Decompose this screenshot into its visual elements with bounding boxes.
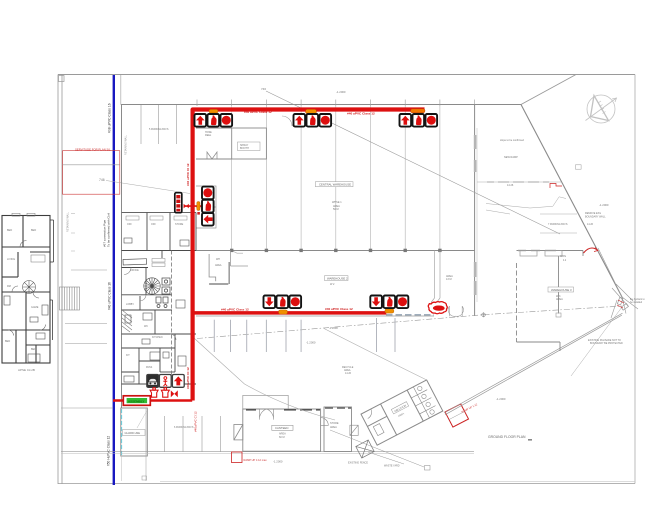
svg-text:-1.2000: -1.2000 xyxy=(336,90,346,94)
svg-text:GAME: GAME xyxy=(31,306,39,309)
svg-text:BED: BED xyxy=(5,340,10,343)
svg-text:AREA: AREA xyxy=(398,412,406,418)
svg-text:ASSEMBLY: ASSEMBLY xyxy=(128,399,144,403)
svg-text:RM: RM xyxy=(7,285,11,288)
svg-text:#40 uPVC Class 12: #40 uPVC Class 12 xyxy=(244,110,272,114)
svg-text:OFF: OFF xyxy=(151,223,156,226)
svg-text:WC: WC xyxy=(144,325,148,328)
svg-text:#40 uPVC Class 12: #40 uPVC Class 12 xyxy=(325,307,353,311)
svg-text:CANTEEN: CANTEEN xyxy=(275,426,288,430)
svg-text:-1.2000: -1.2000 xyxy=(306,341,316,345)
svg-text:GROUND FLOOR PLAN: GROUND FLOOR PLAN xyxy=(488,435,526,439)
svg-text:WH: WH xyxy=(216,258,220,261)
svg-text:RETAINING WALL: RETAINING WALL xyxy=(125,134,128,155)
svg-text:LIVING: LIVING xyxy=(7,258,15,261)
svg-text:746: 746 xyxy=(261,87,266,91)
svg-text:#40uPVC Cl 12: #40uPVC Cl 12 xyxy=(186,367,190,389)
svg-text:#40uPVC Cl 12: #40uPVC Cl 12 xyxy=(193,411,197,432)
svg-text:AREA: AREA xyxy=(215,264,222,267)
svg-text:14.26: 14.26 xyxy=(587,223,594,226)
svg-text:LOBBY: LOBBY xyxy=(126,303,134,306)
svg-text:13 M: 13 M xyxy=(446,278,452,281)
svg-text:OFF: OFF xyxy=(127,223,132,226)
svg-text:-1.2000: -1.2000 xyxy=(273,460,283,464)
svg-text:WHSE 1: WHSE 1 xyxy=(332,201,342,204)
svg-text:#40 uPVC Cl 12: #40 uPVC Cl 12 xyxy=(186,163,190,186)
svg-text:#08 uPVC Class 16: #08 uPVC Class 16 xyxy=(108,103,112,133)
svg-text:KITCHEN: KITCHEN xyxy=(152,336,163,339)
svg-text:slope to be confirmed: slope to be confirmed xyxy=(500,139,525,142)
svg-text:CENTRAL WAREHOUSE: CENTRAL WAREHOUSE xyxy=(319,182,351,186)
svg-text:WAREHOUSE 3: WAREHOUSE 3 xyxy=(551,288,572,292)
svg-text:50 M: 50 M xyxy=(333,208,339,211)
svg-text:#40 uPVC Class 12: #40 uPVC Class 12 xyxy=(221,307,249,311)
svg-text:KIT: KIT xyxy=(126,354,130,357)
svg-text:RAMP UP 1:12 max: RAMP UP 1:12 max xyxy=(244,458,268,462)
svg-text:be installed: be installed xyxy=(630,301,643,304)
svg-text:BED: BED xyxy=(7,229,12,232)
svg-text:SERVITUDE FOR PLAN S/L: SERVITUDE FOR PLAN S/L xyxy=(75,147,111,151)
svg-text:BOUNDARY BE PROTECTED: BOUNDARY BE PROTECTED xyxy=(590,342,623,345)
svg-text:6 PARKING BAYS: 6 PARKING BAYS xyxy=(174,426,194,429)
svg-text:STORE: STORE xyxy=(330,422,339,425)
svg-text:BED: BED xyxy=(31,229,36,232)
svg-text:14.26: 14.26 xyxy=(345,372,352,375)
svg-text:BOOTH: BOOTH xyxy=(240,147,249,150)
svg-text:7 PARKING BAYS: 7 PARKING BAYS xyxy=(548,223,568,226)
svg-text:APSE CLUB: APSE CLUB xyxy=(18,368,35,372)
svg-text:AREA: AREA xyxy=(556,298,563,301)
svg-text:PASS: PASS xyxy=(146,366,153,369)
svg-text:GUARD HSE: GUARD HSE xyxy=(125,431,141,435)
svg-text:WAREHOUSE 2: WAREHOUSE 2 xyxy=(327,276,348,280)
svg-text:-1.2000: -1.2000 xyxy=(599,203,609,207)
svg-text:GATE: GATE xyxy=(560,255,567,258)
svg-text:-1.2000: -1.2000 xyxy=(496,397,506,401)
svg-text:14.26: 14.26 xyxy=(507,184,514,187)
svg-text:BOUNDARY WALL: BOUNDARY WALL xyxy=(585,216,606,219)
svg-text:REEL: REEL xyxy=(205,134,212,137)
svg-text:OFFICE: OFFICE xyxy=(130,269,139,272)
svg-text:-1.2000: -1.2000 xyxy=(329,326,338,330)
svg-text:NEW RAMP: NEW RAMP xyxy=(504,156,518,159)
svg-text:#40 uPVC Class 16: #40 uPVC Class 16 xyxy=(108,282,112,310)
svg-text:746: 746 xyxy=(99,178,105,182)
svg-text:BED: BED xyxy=(31,348,36,351)
svg-text:STORE: STORE xyxy=(175,223,184,226)
svg-text:5 PARKING BAYS: 5 PARKING BAYS xyxy=(149,128,169,131)
svg-text:#50 HuPVC Class 12: #50 HuPVC Class 12 xyxy=(107,436,111,466)
svg-text:RETAINING WALL: RETAINING WALL xyxy=(67,211,70,232)
svg-text:AREA: AREA xyxy=(330,426,337,429)
svg-text:60 M: 60 M xyxy=(279,436,285,439)
svg-text:EXISTING FENCE: EXISTING FENCE xyxy=(348,462,368,465)
svg-text:To be confirmed with Civil: To be confirmed with Civil xyxy=(107,213,111,247)
svg-text:WASTE YARD: WASTE YARD xyxy=(384,465,400,468)
svg-text:4.2: 4.2 xyxy=(563,260,567,262)
svg-text:#40 uPVC Class 12: #40 uPVC Class 12 xyxy=(347,112,375,116)
svg-text:W 2: W 2 xyxy=(330,283,335,286)
